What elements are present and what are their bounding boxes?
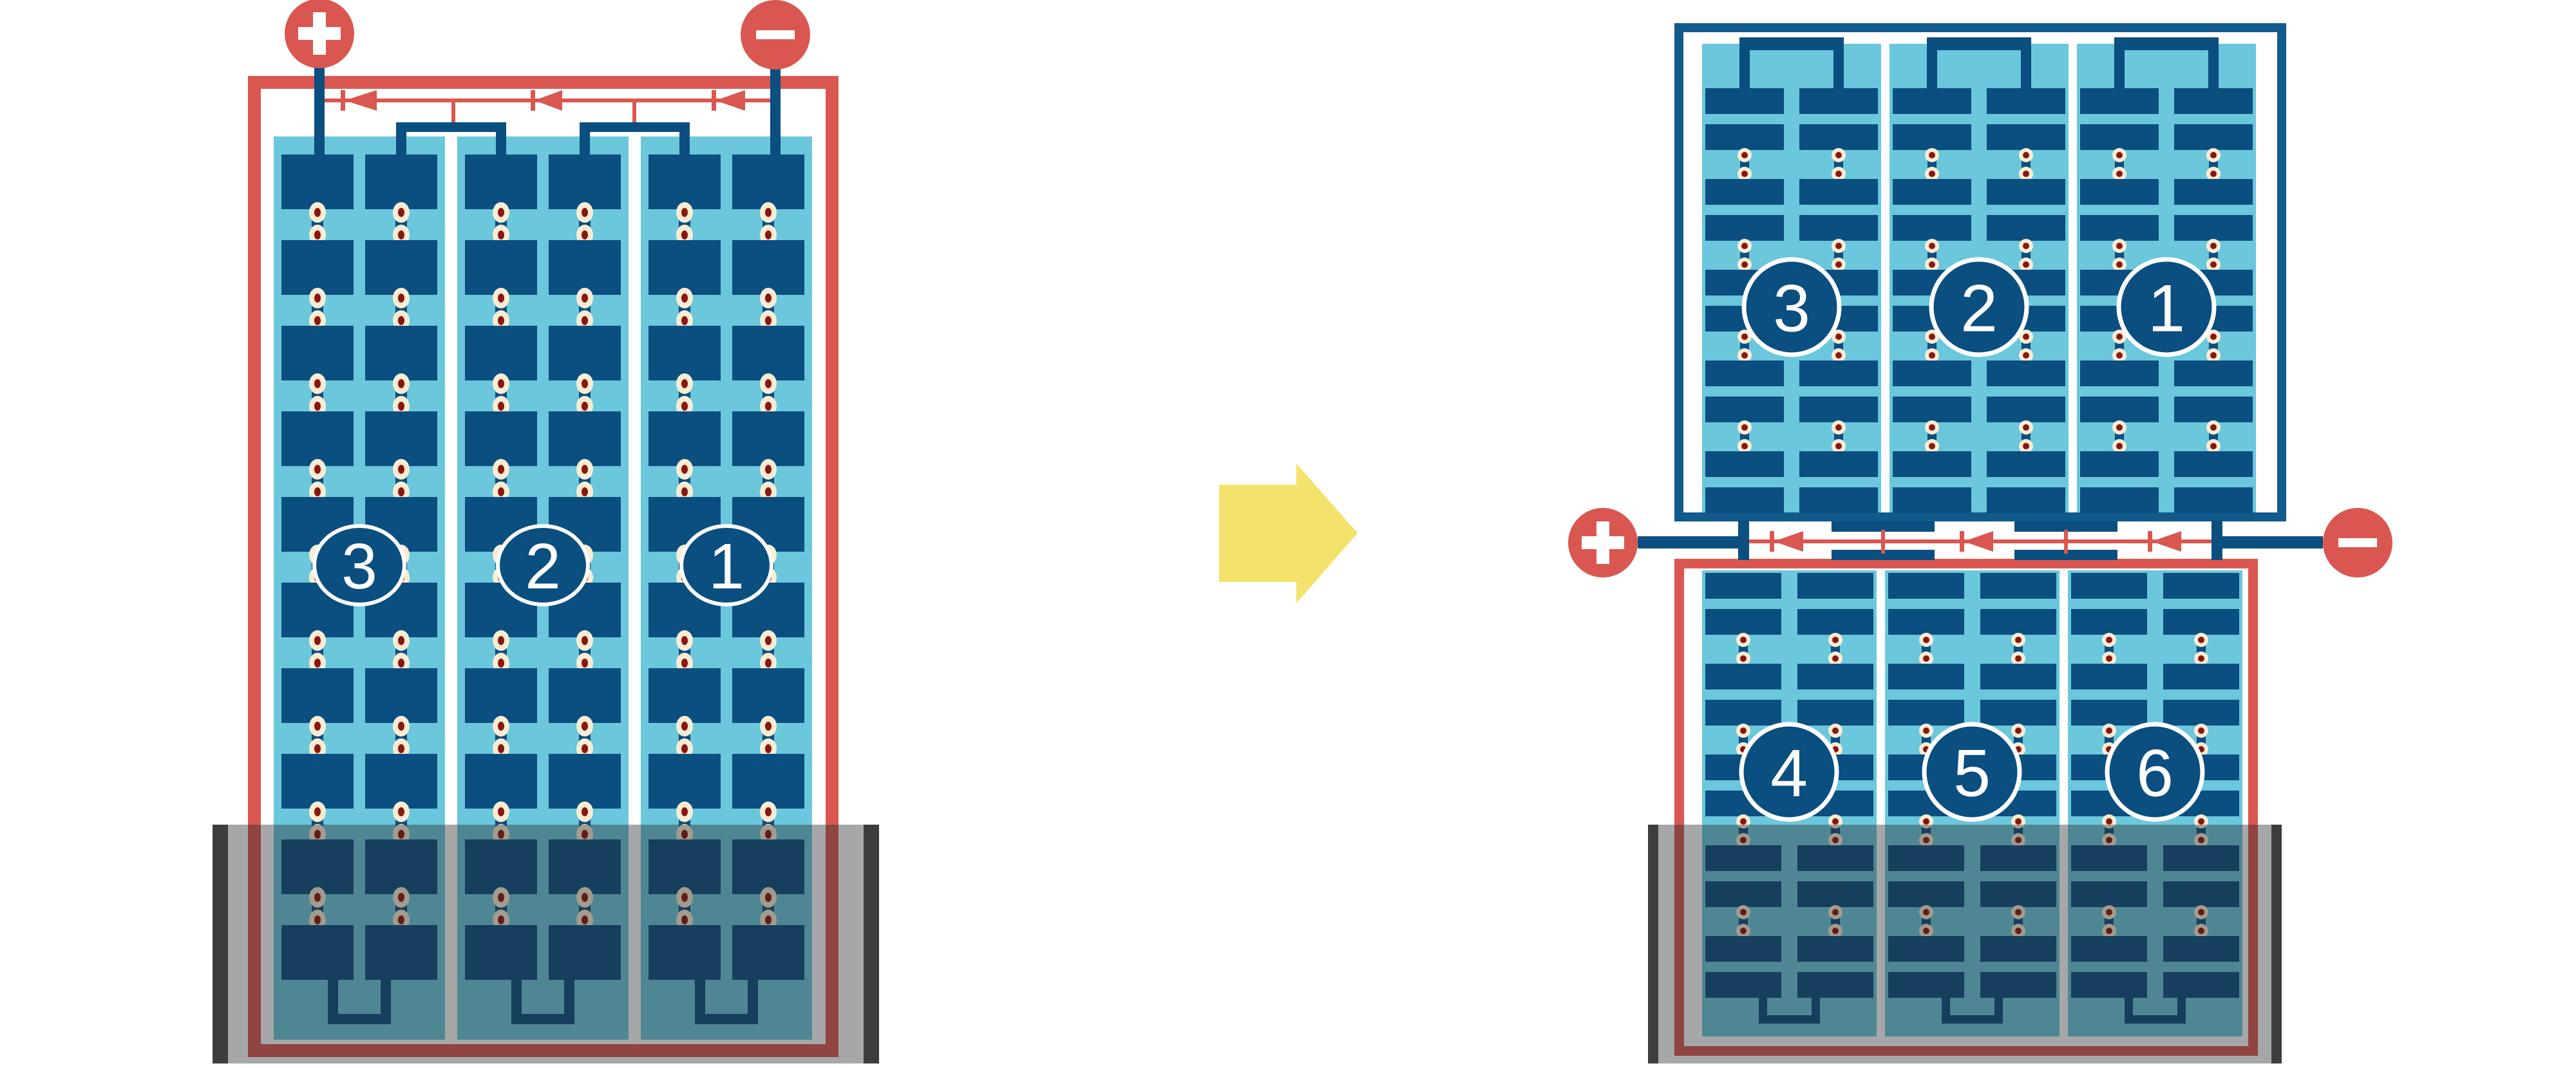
solder-dot-core [582,659,588,668]
solder-dot-core [582,722,588,731]
solder-dot-core [2106,637,2112,643]
minus-terminal [2323,508,2392,577]
minus-sign [2338,538,2377,547]
solar-cell [649,754,721,809]
solder-dot-core [765,807,772,816]
half-cell [1987,179,2065,205]
junction-riser [1738,520,1749,560]
solder-dot-core [398,659,404,668]
staple-bar [2114,37,2219,50]
jumper-leg [580,122,590,155]
solar-cell [281,411,354,466]
solder-dot-core [314,465,321,474]
bypass-diode [1960,531,1993,552]
diode-triangle [1774,531,1803,552]
string-label-number: 3 [1773,271,1810,346]
diode-cathode-bar [1770,531,1774,552]
bypass-diode [341,90,377,111]
string-label-number: 5 [1953,736,1991,810]
solar-cell [649,668,721,723]
solder-dot-core [2015,655,2022,662]
solder-dot-core [2210,261,2217,268]
half-cell [2174,215,2253,241]
solder-dot-core [398,230,404,239]
solder-dot-core [2116,171,2123,177]
solar-cell [281,155,354,209]
solder-dot-core [1741,152,1748,158]
solder-dot-core [398,465,404,474]
solder-dot-core [498,402,504,411]
half-cell [2174,179,2253,205]
diode-cathode-bar [341,90,345,111]
solder-dot-core [2023,152,2029,158]
arrow-shaft [1219,485,1296,582]
solar-cell [465,155,537,209]
solder-dot-core [498,379,504,388]
solder-dot-core [1741,171,1748,177]
half-cell [2071,573,2147,599]
solder-dot-core [2106,818,2112,825]
solder-dot-core [765,487,772,496]
solder-dot-core [582,636,588,645]
half-cell [1987,88,2065,114]
solder-dot-core [2210,443,2217,449]
half-cell [2174,451,2253,477]
solder-dot-core [1832,727,1839,734]
terminal-lead-bar [2222,536,2323,548]
diode-triangle [535,90,562,111]
plus-sign-v [1596,521,1609,564]
solar-cell [281,240,354,295]
diode-triangle [345,90,377,111]
half-cell [2163,573,2239,599]
half-cell [1797,573,1873,599]
half-cell [1705,124,1784,150]
solder-dot-core [2023,352,2029,359]
bypass-diode [1770,531,1803,552]
solder-dot-core [2116,261,2123,268]
diode-tap-stub [632,100,636,122]
jumper-leg [496,122,506,155]
solar-cell [649,240,721,295]
shadow-overlay [1648,825,2282,1063]
solder-dot-core [582,316,588,325]
half-cell [2080,397,2159,422]
bypass-diode [531,90,562,111]
solder-dot-core [2116,443,2123,449]
solar-cell [365,326,437,380]
half-cell [1987,487,2065,513]
staple-leg [1739,37,1750,88]
half-cell [1987,361,2065,386]
string-label: 4 [1741,724,1837,820]
half-cell [2174,361,2253,386]
solar-cell [465,411,537,466]
half-cell [1987,451,2065,477]
half-cell [1987,397,2065,422]
half-cell [1705,361,1784,386]
full-cell-panel-diagram: 321 [213,0,879,1063]
jumper-bar [580,122,690,132]
solder-dot-core [2210,352,2217,359]
staple-bar [1927,37,2031,50]
solder-dot-core [498,294,504,303]
half-cell [1799,487,1878,513]
half-cell [2080,88,2159,114]
diode-cathode-bar [712,90,716,111]
solar-cell [281,668,354,723]
terminal-stem [314,63,325,155]
solder-dot-core [314,722,321,731]
solder-dot-core [1835,171,1842,177]
half-cell [2163,700,2239,726]
shadow-overlay [213,825,879,1063]
half-cell [1980,609,2056,635]
solder-dot-core [1929,243,1935,249]
half-cell [2080,124,2159,150]
solder-dot-core [1740,818,1747,825]
solder-dot-core [2023,261,2029,268]
string-label-number: 6 [2136,736,2173,810]
solder-dot-core [2023,443,2029,449]
solder-dot-core [498,744,504,753]
half-cell [1980,664,2056,689]
shadow-bar [2271,825,2282,1063]
solder-dot-core [398,636,404,645]
solder-dot-core [1929,352,1935,359]
solar-cell [549,668,621,723]
solder-dot-core [2210,152,2217,158]
diode-triangle [2152,531,2181,552]
terminal-lead-bar [1638,536,1738,548]
staple-bar [1739,37,1844,50]
half-cell [1888,609,1964,635]
solder-dot-core [2023,333,2029,340]
solder-dot-core [1929,152,1935,158]
solder-dot-core [2198,818,2204,825]
jumper-leg [679,122,690,155]
solder-dot-core [498,316,504,325]
staple-leg [2021,37,2031,88]
solder-dot-core [314,316,321,325]
solder-dot-core [681,379,688,388]
solder-dot-core [498,722,504,731]
solar-cell [649,155,721,209]
plus-terminal [285,0,354,68]
solder-dot-core [2015,637,2022,643]
solar-cell [465,240,537,295]
solder-dot-core [681,465,688,474]
solder-dot-core [681,230,688,239]
diode-tap-stub [451,100,455,122]
solder-dot-core [314,659,321,668]
half-cell [2080,215,2159,241]
half-cell [2080,487,2159,513]
string-label-number: 4 [1770,736,1808,810]
half-cell [1893,487,1971,513]
solder-dot-core [681,208,688,217]
solder-dot-core [2198,637,2204,643]
bypass-diode-line [1749,530,2211,554]
solder-dot-core [498,208,504,217]
staple-leg [1927,37,1937,88]
staple-leg [1833,37,1844,88]
solder-dot-core [765,744,772,753]
half-cell [1893,215,1971,241]
half-cell [2071,609,2147,635]
half-cell [1893,179,1971,205]
solder-dot-core [681,722,688,731]
shadow-bar [864,825,879,1063]
solder-dot-core [2106,655,2112,662]
diode-triangle [715,90,745,111]
solder-dot-core [582,487,588,496]
solder-dot-core [314,636,321,645]
solar-cell [732,326,804,380]
solder-dot-core [765,659,772,668]
solder-dot-core [582,807,588,816]
solar-cell [365,155,437,209]
half-cell [1797,700,1873,726]
half-cell [2163,609,2239,635]
half-cell [2174,124,2253,150]
solder-dot-core [2116,243,2123,249]
solder-dot-core [1740,727,1747,734]
shadow-bar [213,825,228,1063]
arrow-head [1296,464,1358,603]
solder-dot-core [2015,727,2022,734]
solder-dot-core [2210,424,2217,431]
string-label-number: 3 [341,530,377,603]
solder-dot-core [2116,152,2123,158]
half-cell [1893,361,1971,386]
jumper-bar [396,122,506,132]
diode-tap-stub [2064,530,2068,554]
solder-dot-core [681,294,688,303]
solder-dot-core [1929,424,1935,431]
solder-dot-core [1929,171,1935,177]
diode-cathode-bar [2148,531,2152,552]
string-label: 2 [1931,259,2027,355]
solder-dot-core [1835,443,1842,449]
string-label: 6 [2107,724,2202,820]
solder-dot-core [765,636,772,645]
half-cell [1799,451,1878,477]
solder-dot-core [1835,243,1842,249]
solder-dot-core [314,379,321,388]
half-cell [2174,88,2253,114]
staple-leg [2208,37,2219,88]
half-cell [1987,215,2065,241]
half-cell [1705,700,1781,726]
half-cell [1980,573,2056,599]
solder-dot-core [582,402,588,411]
shadow-band [1648,825,2282,1063]
solder-dot-core [1929,333,1935,340]
solder-dot-core [765,465,772,474]
terminal-stem [770,63,781,155]
solder-dot-core [582,208,588,217]
solar-cell [365,668,437,723]
string-label: 1 [681,526,772,604]
half-cell [1705,397,1784,422]
solder-dot-core [681,744,688,753]
staple-leg [2114,37,2125,88]
half-cell [1893,88,1971,114]
half-cell [2071,664,2147,689]
solder-dot-core [398,744,404,753]
solder-dot-core [765,402,772,411]
half-cell [2163,664,2239,689]
solder-dot-core [1835,424,1842,431]
string-label: 3 [1744,259,1839,355]
solder-dot-core [314,744,321,753]
solder-dot-core [398,722,404,731]
solder-dot-core [1741,443,1748,449]
minus-sign [756,30,795,39]
solder-dot-core [1741,424,1748,431]
solder-dot-core [2116,424,2123,431]
solar-cell [365,411,437,466]
diode-cathode-bar [1960,531,1964,552]
solder-dot-core [2023,243,2029,249]
solder-dot-core [498,465,504,474]
solder-dot-core [498,659,504,668]
solder-dot-core [1832,637,1839,643]
solder-dot-core [1741,261,1748,268]
string-label-number: 2 [525,530,561,603]
solder-dot-core [398,294,404,303]
solder-dot-core [582,379,588,388]
solder-dot-core [498,487,504,496]
solder-dot-core [314,294,321,303]
solder-dot-core [1923,655,1929,662]
solder-dot-core [1741,352,1748,359]
half-cell [2080,451,2159,477]
half-cell [1987,124,2065,150]
half-cell [1705,573,1781,599]
solder-dot-core [314,807,321,816]
half-cut-panel-diagram: 321456 [1568,28,2392,1063]
solder-dot-core [765,379,772,388]
diagram-stage: 321321456 [0,0,2576,1068]
half-cell [1799,397,1878,422]
bypass-diode-line [325,90,770,122]
solder-dot-core [1832,818,1839,825]
plus-terminal [1568,508,1638,577]
half-cell [1893,124,1971,150]
string-label: 2 [498,526,588,604]
solder-dot-core [1835,352,1842,359]
half-cell [1893,397,1971,422]
solder-dot-core [765,230,772,239]
solar-cell [732,668,804,723]
half-cell [1799,179,1878,205]
solder-dot-core [2023,171,2029,177]
half-cell [1705,487,1784,513]
half-cell [1705,451,1784,477]
solder-dot-core [1740,655,1747,662]
half-cell [1888,664,1964,689]
solar-cell [465,754,537,809]
half-cell [2174,487,2253,513]
solar-cell [549,754,621,809]
solder-dot-core [398,807,404,816]
solder-dot-core [1923,727,1929,734]
half-cell [2071,700,2147,726]
solar-cell [732,411,804,466]
solder-dot-core [2023,424,2029,431]
solder-dot-core [681,636,688,645]
solar-cell [732,240,804,295]
half-cell [1888,573,1964,599]
bypass-diode [2148,531,2181,552]
solder-dot-core [2210,171,2217,177]
solder-dot-core [2015,818,2022,825]
half-cell [1980,700,2056,726]
solder-dot-core [314,208,321,217]
minus-terminal [741,0,810,70]
half-cell [1893,451,1971,477]
string-label-number: 1 [708,530,744,603]
top-half-panel: 321 [1679,28,2282,517]
solder-dot-core [681,402,688,411]
diode-tap-stub [1881,530,1885,554]
solder-dot-core [1835,152,1842,158]
solder-dot-core [2210,333,2217,340]
string-label-number: 1 [2148,271,2185,346]
solar-cell [649,326,721,380]
solar-cell [365,754,437,809]
solar-cell [732,754,804,809]
diode-triangle [1964,531,1993,552]
junction-riser [2211,520,2222,560]
half-cell [1888,700,1964,726]
solder-dot-core [1741,333,1748,340]
solder-dot-core [582,465,588,474]
solder-dot-core [681,659,688,668]
solder-dot-core [1835,261,1842,268]
solder-dot-core [1923,818,1929,825]
solder-dot-core [1923,637,1929,643]
plus-sign-v [313,12,326,55]
solder-dot-core [398,316,404,325]
diode-cathode-bar [531,90,535,111]
solder-dot-core [2198,727,2204,734]
solder-dot-core [398,402,404,411]
solder-dot-core [582,744,588,753]
solder-dot-core [498,230,504,239]
solder-dot-core [681,316,688,325]
string-label: 1 [2119,259,2214,355]
half-cell [1705,609,1781,635]
shadow-band [213,825,879,1063]
solar-cell [365,240,437,295]
half-cell [1799,124,1878,150]
solder-dot-core [314,402,321,411]
half-cell [1705,179,1784,205]
solder-dot-core [1832,655,1839,662]
diagram-canvas: 321321456 [0,0,2576,1068]
half-cell [2080,179,2159,205]
shadow-bar [1648,825,1658,1063]
solder-dot-core [1741,243,1748,249]
solder-dot-core [498,807,504,816]
half-cell [1705,215,1784,241]
solder-dot-core [2116,333,2123,340]
solder-dot-core [1835,333,1842,340]
solder-dot-core [314,230,321,239]
